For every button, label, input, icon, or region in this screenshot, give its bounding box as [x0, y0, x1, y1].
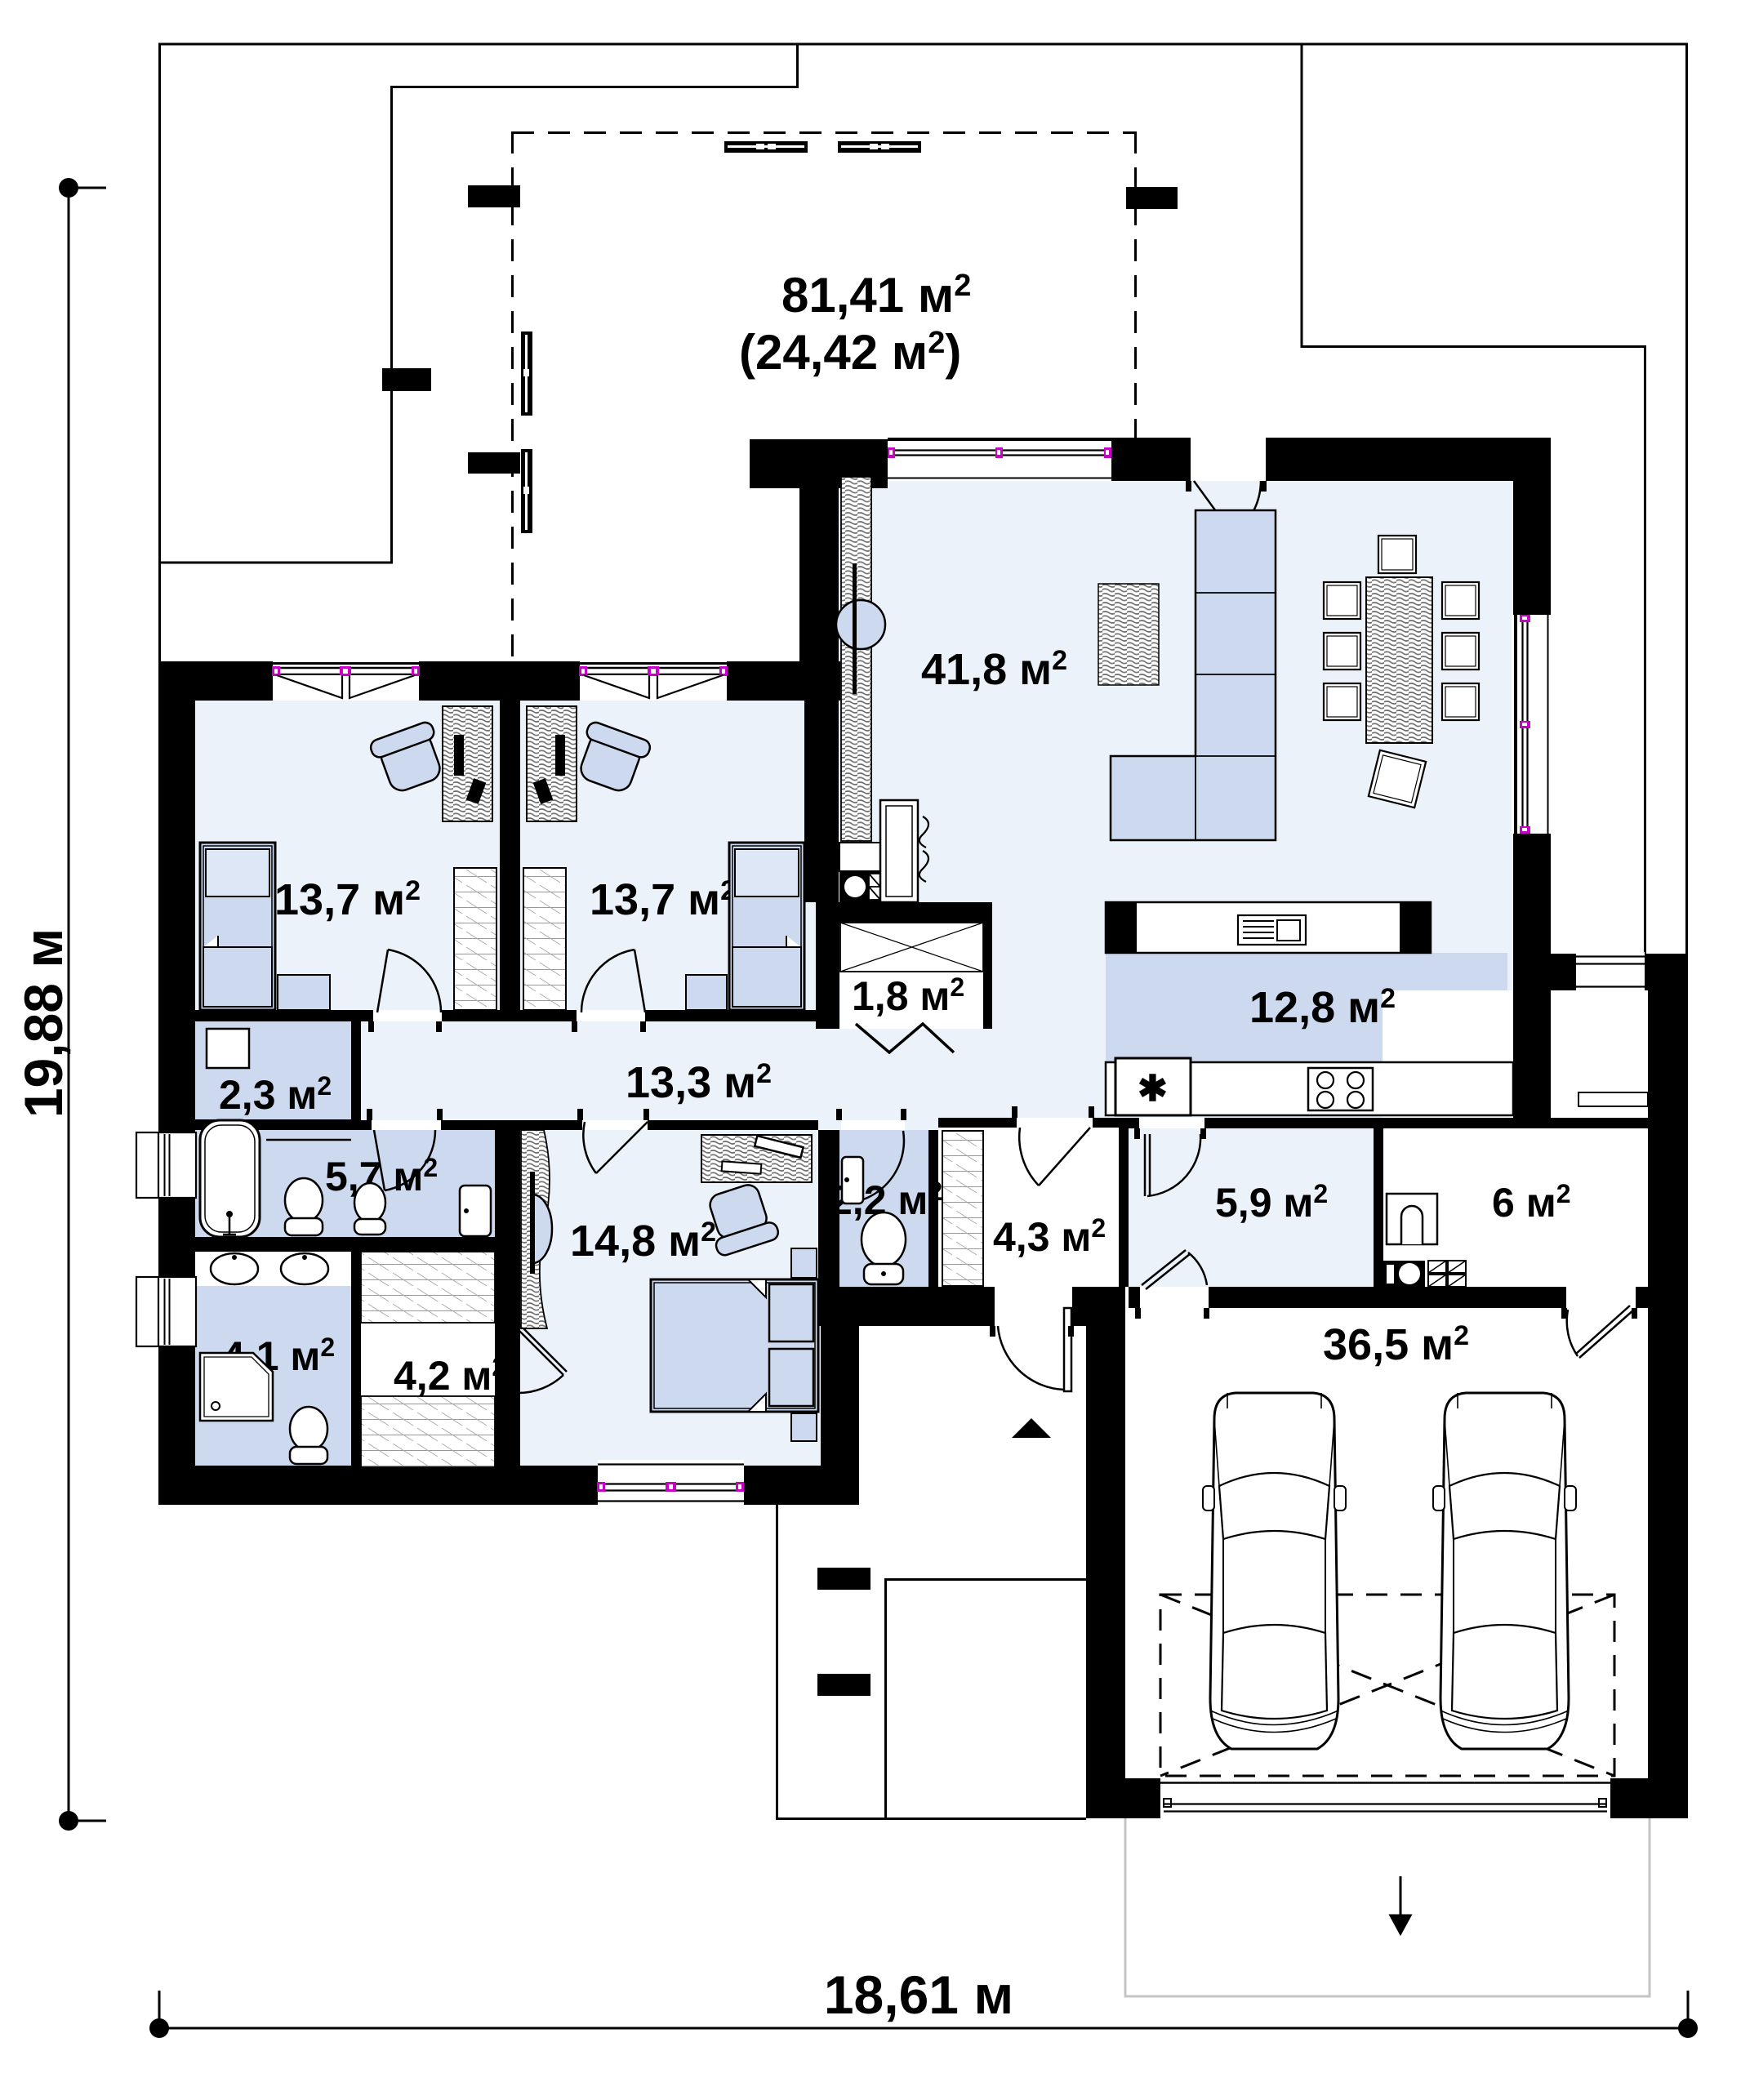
svg-text:12,8 м2: 12,8 м2 — [1249, 983, 1396, 1032]
svg-text:4,3 м2: 4,3 м2 — [993, 1213, 1106, 1260]
svg-text:13,3 м2: 13,3 м2 — [626, 1058, 772, 1107]
svg-text:14,8 м2: 14,8 м2 — [570, 1217, 716, 1266]
svg-text:✱: ✱ — [1138, 1069, 1168, 1109]
svg-text:5,9 м2: 5,9 м2 — [1215, 1179, 1328, 1226]
svg-text:13,7 м2: 13,7 м2 — [590, 875, 736, 924]
svg-text:19,88 м: 19,88 м — [13, 928, 73, 1118]
svg-text:1,8 м2: 1,8 м2 — [852, 972, 964, 1019]
svg-text:41,8 м2: 41,8 м2 — [921, 645, 1067, 694]
svg-text:18,61 м: 18,61 м — [824, 1964, 1013, 2025]
svg-text:36,5 м2: 36,5 м2 — [1323, 1320, 1469, 1369]
svg-text:4,2 м2: 4,2 м2 — [394, 1352, 506, 1399]
svg-text:81,41 м2: 81,41 м2 — [781, 268, 971, 323]
svg-text:2,3 м2: 2,3 м2 — [219, 1071, 332, 1118]
svg-text:13,7 м2: 13,7 м2 — [274, 875, 421, 924]
